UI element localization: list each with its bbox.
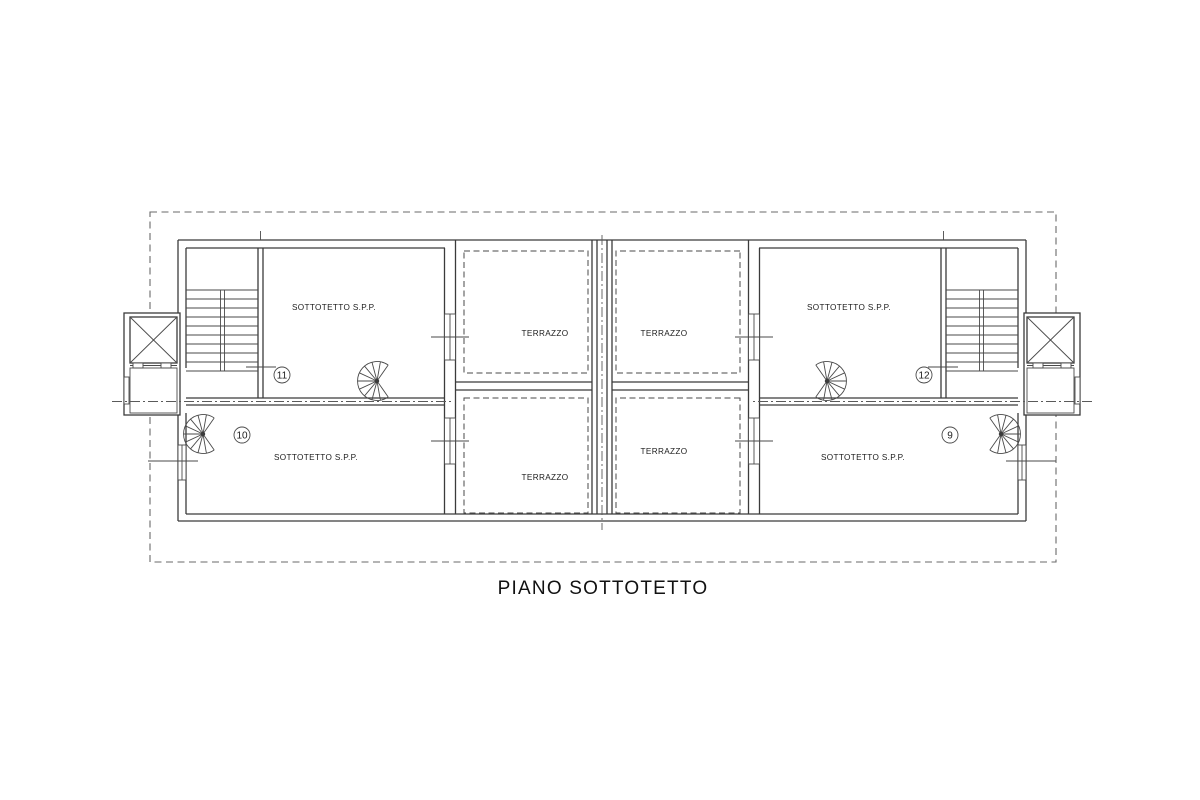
- unit-number-badge: 10: [234, 427, 250, 443]
- staircase-icon: [186, 290, 258, 371]
- property-boundary: [150, 212, 1056, 562]
- terrace-dashed-edge: [464, 251, 588, 373]
- spiral-staircase-icon: [184, 415, 215, 454]
- window-icon: [431, 314, 469, 360]
- svg-text:9: 9: [947, 431, 953, 442]
- plan-title: PIANO SOTTOTETTO: [498, 578, 709, 599]
- window-icon: [431, 418, 469, 464]
- window-icon: [148, 445, 198, 480]
- stairwell-wall: [258, 231, 263, 398]
- svg-text:11: 11: [277, 371, 288, 382]
- building-structure-half-mirrored: [602, 231, 1092, 521]
- room-label: SOTTOTETTO S.P.P.: [807, 303, 891, 312]
- elevator-block: [124, 313, 180, 415]
- terrace-label: TERRAZZO: [522, 473, 569, 482]
- door-jamb-mark: [133, 363, 143, 368]
- door-jamb-mark: [161, 363, 171, 368]
- terrace-dashed-edge: [464, 398, 588, 513]
- unit-number-badge: 11: [274, 367, 290, 383]
- floor-plan-svg: SOTTOTETTO S.P.P. SOTTOTETTO S.P.P. SOTT…: [0, 0, 1200, 800]
- room-label: SOTTOTETTO S.P.P.: [821, 453, 905, 462]
- window-icon: [124, 377, 129, 404]
- room-terrace-wall: [445, 240, 456, 514]
- svg-text:10: 10: [236, 431, 248, 442]
- spiral-staircase-icon: [358, 362, 389, 401]
- terrace-label: TERRAZZO: [641, 447, 688, 456]
- unit-number-badge: 9: [942, 427, 958, 443]
- svg-text:12: 12: [918, 371, 930, 382]
- terrace-label: TERRAZZO: [522, 329, 569, 338]
- terrace-label: TERRAZZO: [641, 329, 688, 338]
- unit-number-badge: 12: [916, 367, 932, 383]
- spiral-staircase-icon: [816, 362, 847, 401]
- room-label: SOTTOTETTO S.P.P.: [292, 303, 376, 312]
- room-label: SOTTOTETTO S.P.P.: [274, 453, 358, 462]
- spiral-staircase-icon: [990, 415, 1021, 454]
